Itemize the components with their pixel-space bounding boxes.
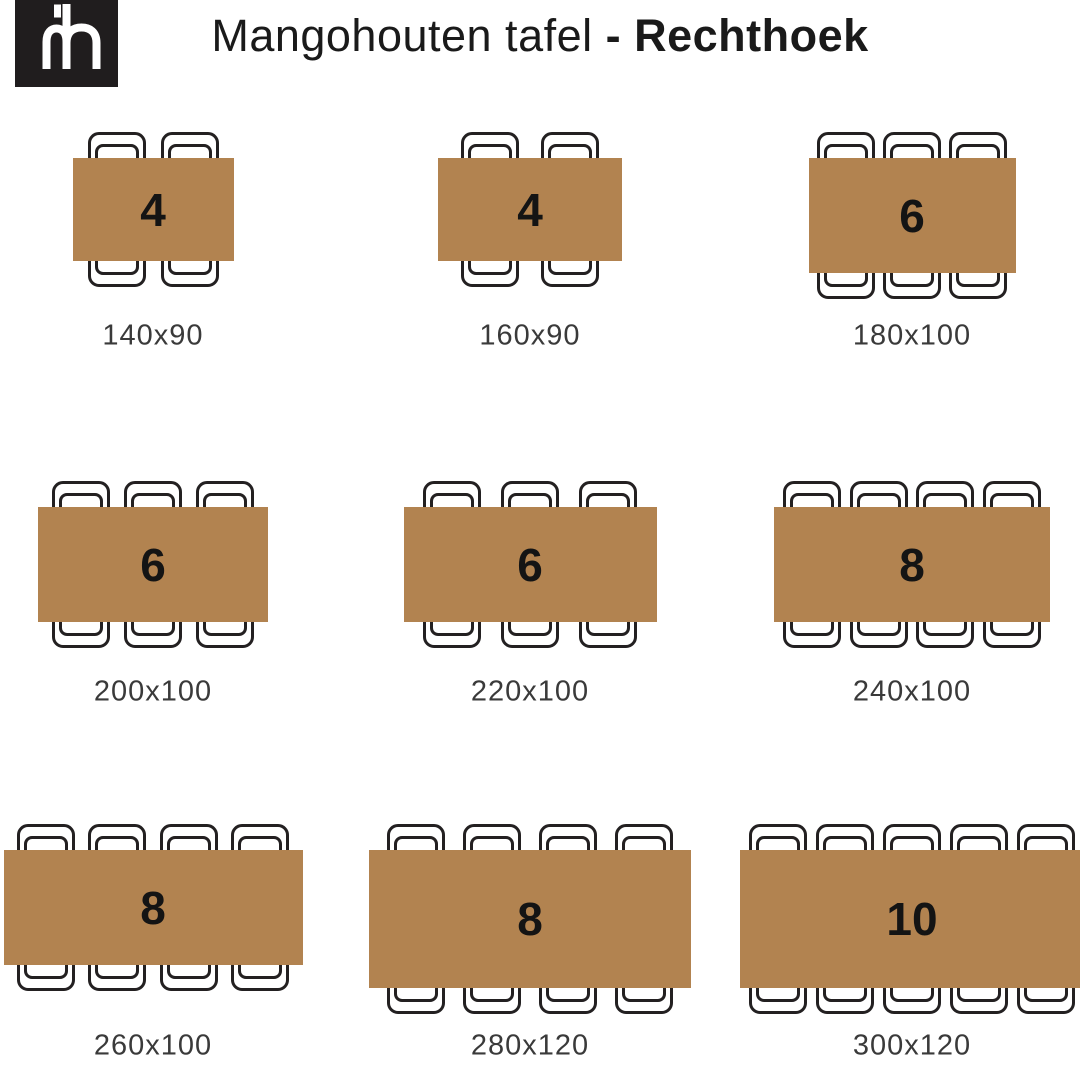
table-layout-300x120: 10 <box>740 824 1080 1014</box>
page-title-regular: Mangohouten tafel <box>211 10 605 61</box>
page-title-bold: - Rechthoek <box>606 10 869 61</box>
seat-count: 10 <box>886 896 937 942</box>
seat-count: 8 <box>899 542 925 588</box>
seat-count: 6 <box>899 193 925 239</box>
table-size-label: 140x90 <box>102 320 203 353</box>
table-layout-220x100: 6 <box>404 481 657 648</box>
table-size-label: 240x100 <box>853 676 971 709</box>
tabletop: 4 <box>73 158 234 261</box>
table-layout-140x90: 4 <box>73 132 234 287</box>
table-size-label: 220x100 <box>471 676 589 709</box>
table-size-label: 200x100 <box>94 676 212 709</box>
seat-count: 4 <box>140 187 166 233</box>
seat-count: 4 <box>517 187 543 233</box>
table-size-label: 180x100 <box>853 320 971 353</box>
tabletop: 6 <box>38 507 268 622</box>
table-layout-160x90: 4 <box>438 132 622 287</box>
table-layout-200x100: 6 <box>38 481 268 648</box>
tabletop: 6 <box>809 158 1016 273</box>
page-title: Mangohouten tafel - Rechthoek <box>0 10 1080 62</box>
seat-count: 8 <box>517 896 543 942</box>
tabletop: 8 <box>4 850 303 965</box>
table-size-label: 160x90 <box>479 320 580 353</box>
table-size-label: 300x120 <box>853 1030 971 1063</box>
table-size-label: 260x100 <box>94 1030 212 1063</box>
infographic-page: Mangohouten tafel - Rechthoek 4140x90416… <box>0 0 1080 1080</box>
seat-count: 6 <box>517 542 543 588</box>
table-layout-240x100: 8 <box>774 481 1050 648</box>
table-layout-260x100: 8 <box>4 824 303 991</box>
seat-count: 6 <box>140 542 166 588</box>
tabletop: 4 <box>438 158 622 261</box>
tabletop: 10 <box>740 850 1080 988</box>
tabletop: 8 <box>774 507 1050 622</box>
seat-count: 8 <box>140 885 166 931</box>
table-layout-180x100: 6 <box>809 132 1016 299</box>
table-size-label: 280x120 <box>471 1030 589 1063</box>
table-layout-280x120: 8 <box>369 824 691 1014</box>
tabletop: 8 <box>369 850 691 988</box>
tabletop: 6 <box>404 507 657 622</box>
